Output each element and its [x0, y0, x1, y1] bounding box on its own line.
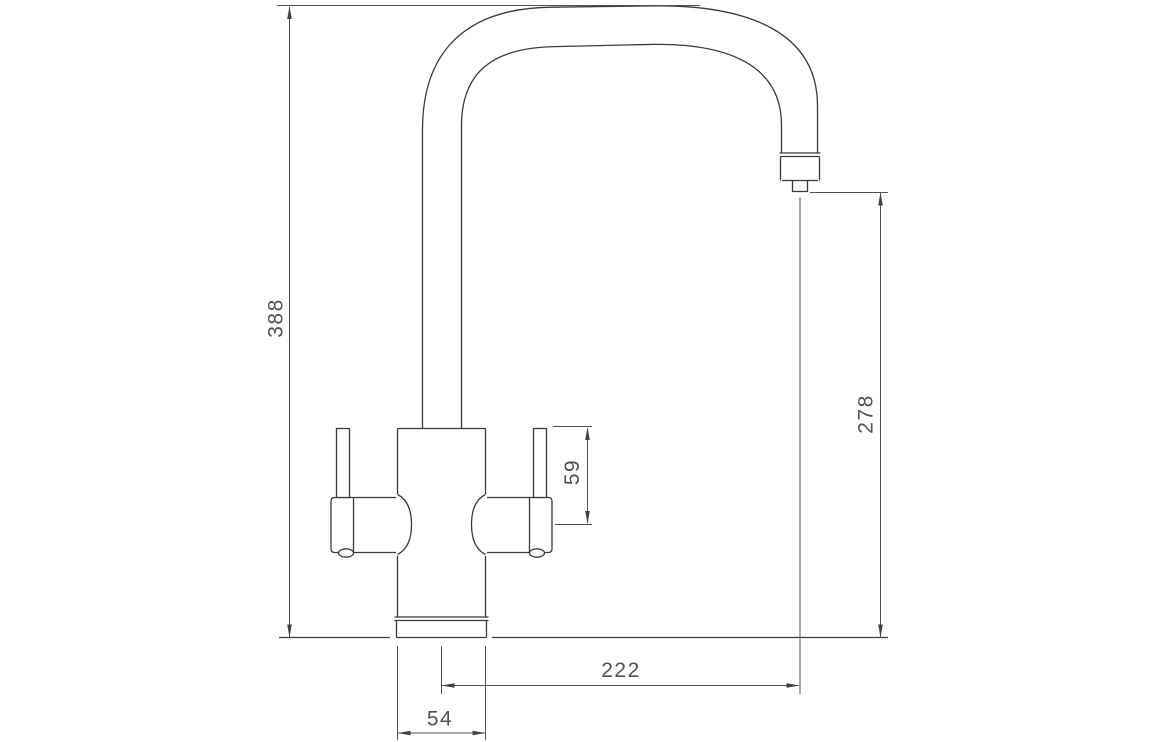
ext-lines-below-base	[398, 198, 801, 741]
dim-label-overall-height: 388	[265, 298, 288, 338]
arrow-up-icon	[878, 193, 883, 206]
drawing-sheet: 388 278 59 222 54	[0, 0, 1156, 742]
right-handle-end-cap-curve	[472, 495, 486, 555]
faucet-technical-drawing: 388 278 59 222 54	[0, 0, 1156, 742]
spout-inner-edge	[462, 44, 782, 428]
left-handle-body	[331, 498, 396, 553]
nozzle-tip	[793, 181, 808, 192]
arrow-right-icon	[473, 731, 486, 736]
arrow-down-icon	[287, 625, 292, 638]
arrow-left-icon	[398, 731, 411, 736]
faucet-outline	[279, 6, 888, 638]
arrow-down-icon	[878, 625, 883, 638]
left-lever	[337, 429, 350, 498]
arrow-right-icon	[787, 683, 800, 688]
dim-label-body-width: 54	[427, 708, 453, 731]
dim-label-spout-projection: 222	[601, 659, 641, 682]
tap-body	[398, 429, 486, 618]
arrow-up-icon	[287, 6, 292, 19]
base-collar	[395, 617, 489, 638]
dim-label-spout-outlet-height: 278	[855, 394, 878, 434]
arrow-up-icon	[585, 427, 590, 440]
right-handle	[472, 429, 553, 558]
right-lever-end-knob	[530, 549, 545, 557]
arrow-down-icon	[585, 511, 590, 524]
left-handle-end-cap-curve	[398, 495, 412, 555]
right-handle-body	[487, 498, 552, 553]
aerator	[780, 153, 821, 181]
left-handle	[331, 429, 412, 558]
right-lever	[534, 429, 547, 498]
arrow-left-icon	[442, 683, 455, 688]
dimension-annotations: 388 278 59 222 54	[265, 6, 889, 741]
left-lever-end-knob	[339, 549, 354, 557]
dim-label-handle-height: 59	[561, 459, 584, 485]
